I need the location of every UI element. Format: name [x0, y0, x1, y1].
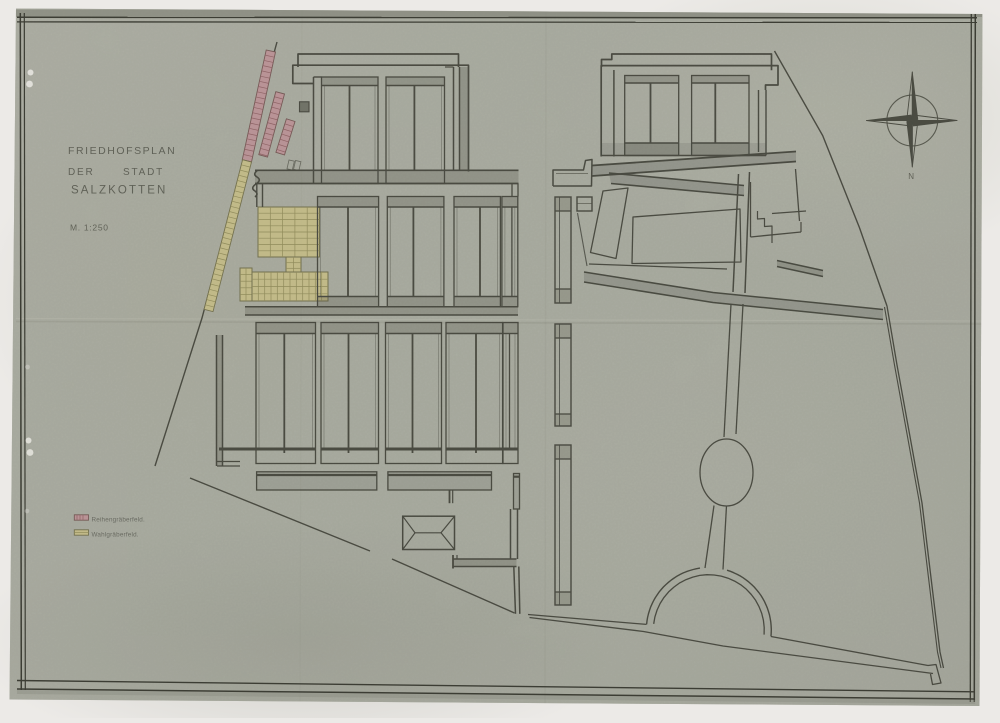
svg-text:FRIEDHOFSPLAN: FRIEDHOFSPLAN	[68, 145, 176, 157]
svg-text:Reihengräberfeld.: Reihengräberfeld.	[92, 516, 146, 523]
svg-text:STADT: STADT	[123, 167, 164, 178]
svg-text:DER: DER	[68, 167, 95, 178]
svg-text:Wahlgräberfeld.: Wahlgräberfeld.	[92, 532, 139, 539]
svg-text:N: N	[908, 172, 914, 181]
svg-text:SALZKOTTEN: SALZKOTTEN	[71, 185, 167, 197]
svg-text:M. 1:250: M. 1:250	[70, 223, 109, 233]
